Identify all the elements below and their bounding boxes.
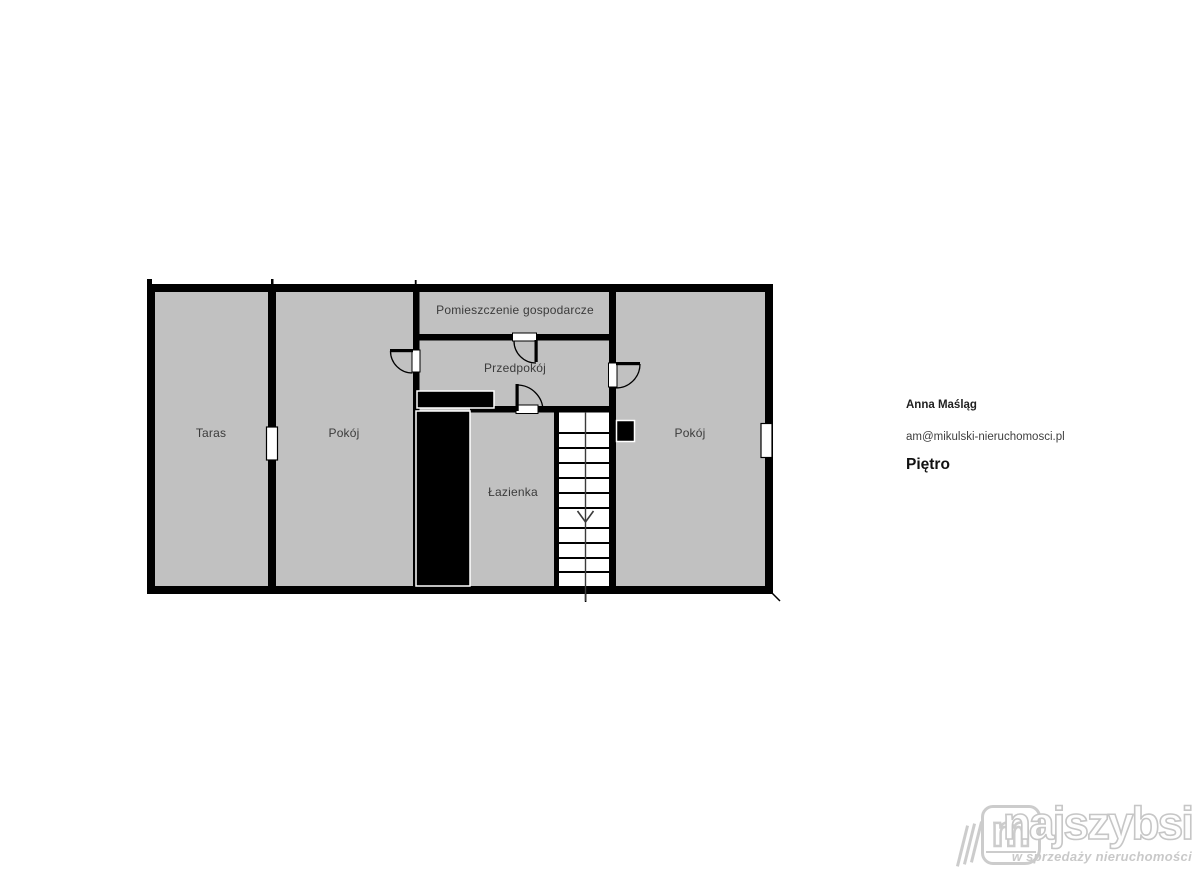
brand-logo: m najszybsi w sprzedaży nieruchomości (952, 800, 1200, 878)
outer-wall-bottom (147, 586, 773, 594)
void-column (416, 411, 470, 586)
door-opening-gospodarcze (513, 333, 537, 341)
tick-wall-taras (271, 279, 274, 285)
room-label-pomieszczenie-gospodarcze: Pomieszczenie gospodarcze (436, 303, 594, 317)
agent-name: Anna Maśląg (906, 399, 977, 411)
room-label-lazienka: Łazienka (488, 485, 538, 499)
outer-wall-top (147, 284, 773, 292)
agent-email: am@mikulski-nieruchomosci.pl (906, 431, 1065, 443)
page: Taras Pokój Pomieszczenie gospodarcze Pr… (0, 0, 1200, 878)
room-label-pokoj-left: Pokój (328, 426, 359, 440)
door-opening-pokoj-right (609, 363, 618, 387)
door-leaf-lazienka (516, 384, 519, 411)
tick-bottom-right (772, 593, 780, 601)
window-taras-wall (267, 427, 278, 460)
door-leaf-gospodarcze (535, 340, 538, 362)
logo-tagline-text: w sprzedaży nieruchomości (1012, 849, 1192, 864)
tick-wall-middle (415, 280, 417, 285)
window-right-wall (761, 424, 772, 458)
room-label-taras: Taras (196, 426, 226, 440)
room-label-pokoj-right: Pokój (674, 426, 705, 440)
door-leaf-pokoj-left (390, 349, 413, 352)
tick-top-left (147, 279, 152, 285)
door-leaf-pokoj-right (616, 362, 640, 365)
door-opening-lazienka (516, 405, 538, 414)
wall-middle-pokoj-right (609, 292, 616, 586)
chimney-block (617, 421, 635, 442)
floor-title: Piętro (906, 456, 950, 474)
logo-brand-text: najszybsi (1003, 800, 1192, 846)
room-label-przedpokoj: Przedpokój (484, 361, 546, 375)
wardrobe-block (417, 391, 494, 408)
door-opening-pokoj-left (412, 350, 420, 372)
wall-lazienka-stairs (554, 412, 559, 586)
outer-wall-left (147, 284, 155, 594)
